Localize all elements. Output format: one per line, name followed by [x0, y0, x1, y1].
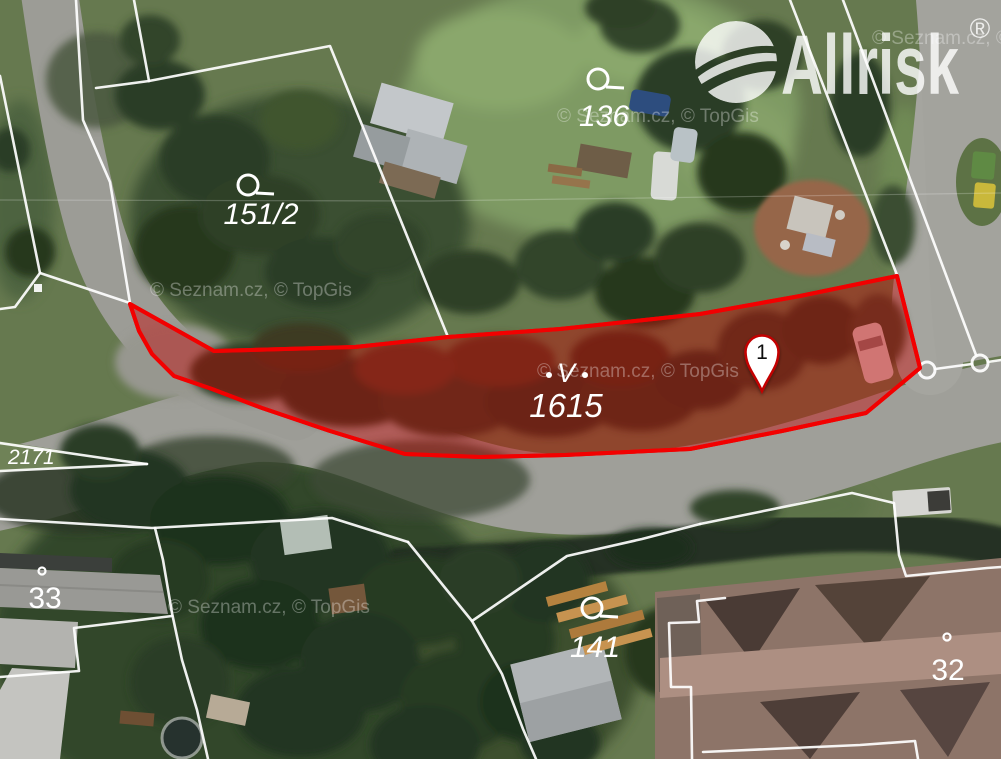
map-watermark: © Seznam.cz, © TopGis [168, 597, 370, 618]
pool [162, 718, 202, 758]
bin-green [971, 151, 996, 180]
trailer [892, 487, 952, 517]
parcel-label-1615: 1615 [529, 387, 603, 424]
registered-trademark-symbol: ® [970, 13, 991, 44]
car-light [670, 126, 698, 163]
bin-yellow [973, 182, 996, 209]
map-watermark: © Seznam.cz, © TopGis [150, 280, 352, 301]
map-watermark: © Seznam.cz, © TopGis [537, 361, 739, 382]
map-watermark: © Seznam.cz, © TopGis [557, 106, 759, 127]
boundary-marker-square [34, 284, 42, 292]
parcel-label-33: 33 [28, 582, 61, 615]
marker-number: 1 [756, 341, 768, 364]
aerial-map-canvas[interactable]: 136 151/2 V 1615 141 2171 33 32 © Seznam… [0, 0, 1001, 759]
rubble-patch [754, 180, 870, 276]
parcel-label-32: 32 [931, 654, 964, 687]
parcel-label-151-2: 151/2 [223, 198, 298, 231]
allrisk-logo-text: Allrisk [781, 18, 959, 112]
parcel-label-2171: 2171 [7, 446, 55, 469]
allrisk-logo: Allrisk ® [695, 13, 991, 112]
allrisk-globe-icon [695, 21, 777, 103]
parcel-label-141: 141 [570, 631, 620, 664]
